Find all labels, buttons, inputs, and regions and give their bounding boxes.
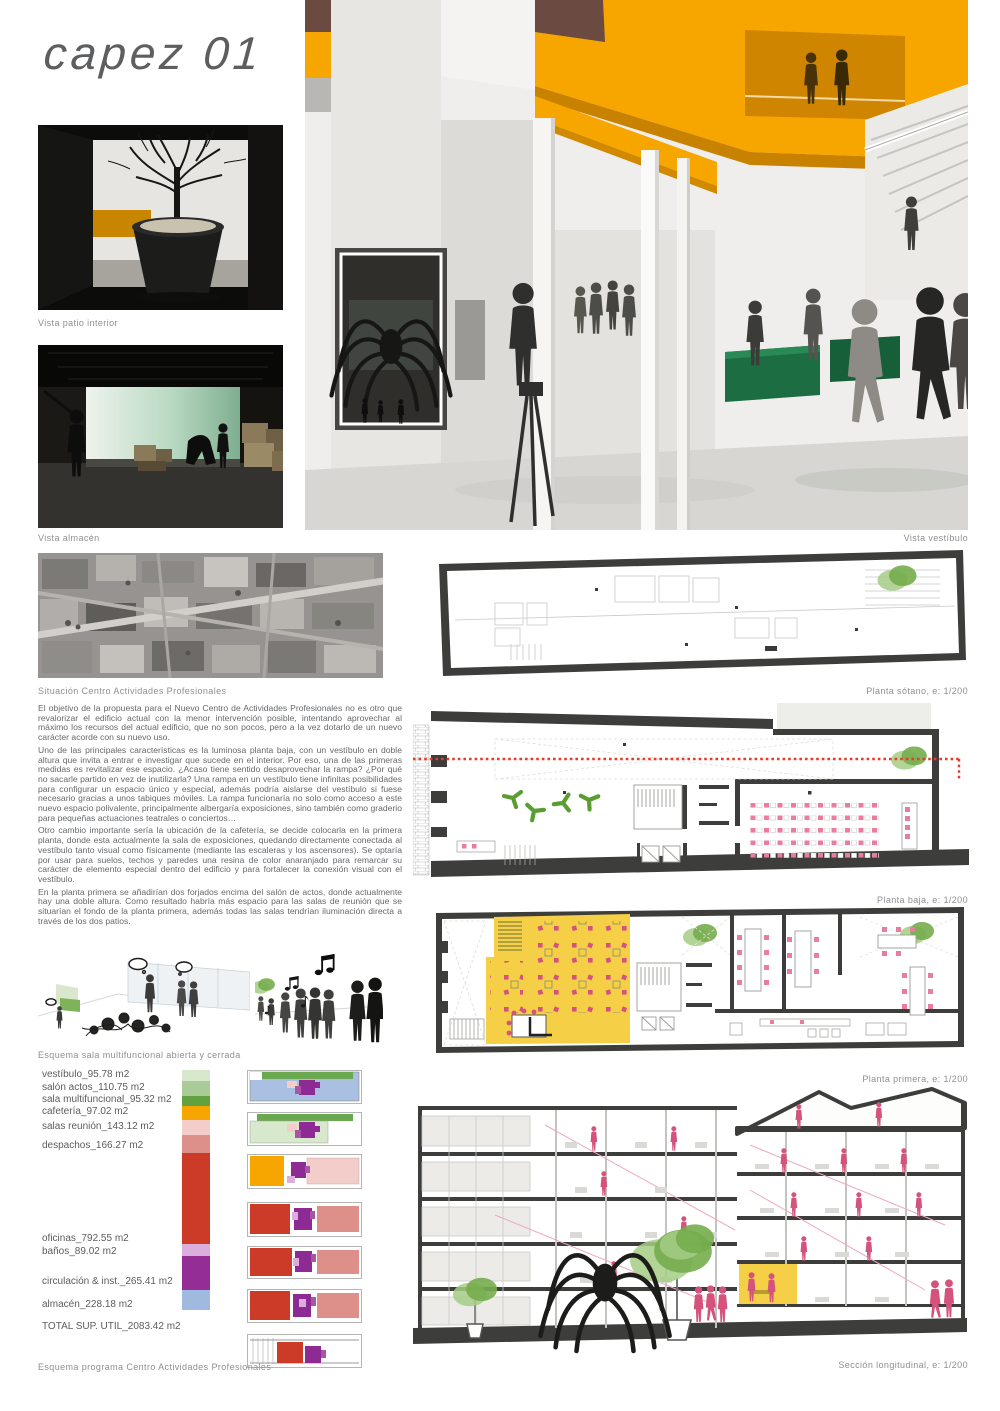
bar-vestibulo (182, 1070, 210, 1081)
plan-sotano (435, 548, 968, 678)
legend-item-oficinas: oficinas_792.55 m2 (42, 1233, 129, 1244)
program-thumb-5 (247, 1246, 362, 1279)
podium (902, 803, 917, 849)
bar-almacen (182, 1290, 210, 1310)
crowd-figures (258, 978, 383, 1043)
caption-situacion: Situación Centro Actividades Profesional… (38, 686, 226, 696)
bar-salas-reunion (182, 1120, 210, 1135)
paragraph-2: Uno de las principales características e… (38, 746, 402, 824)
bar-sala-multifuncional (182, 1096, 210, 1106)
green-seats (504, 792, 598, 823)
bar-cafeteria (182, 1106, 210, 1120)
bar-oficinas (182, 1153, 210, 1244)
legend-item-despachos: despachos_166.27 m2 (42, 1140, 143, 1151)
bar-banos (182, 1244, 210, 1256)
caption-patio: Vista patio interior (38, 318, 118, 328)
vestibule-render (305, 0, 968, 530)
legend-item-banos: baños_89.02 m2 (42, 1246, 117, 1257)
bar-circulacion (182, 1256, 210, 1290)
program-thumb-4 (247, 1202, 362, 1237)
sketch-sala-cerrada (255, 954, 383, 1046)
program-thumb-2 (247, 1112, 362, 1146)
stair-core (634, 785, 682, 862)
auditorium-seats (749, 797, 879, 859)
cafeteria-section (739, 1264, 797, 1304)
caption-esquema-sala: Esquema sala multifuncional abierta y ce… (38, 1050, 241, 1060)
bar-despachos (182, 1135, 210, 1153)
patio-photo (38, 125, 283, 310)
legend-item-cafeteria: cafetería_97.02 m2 (42, 1106, 128, 1117)
walls (431, 711, 969, 877)
courtyard-dashed (495, 739, 833, 779)
site-map (38, 553, 383, 678)
sketch-sala-abierta (38, 954, 250, 1046)
legend-item-salas-reunion: salas reunión_143.12 m2 (42, 1121, 154, 1132)
plan-baja (413, 703, 973, 888)
patio-wall-orange (305, 32, 331, 78)
plan-primera (430, 905, 970, 1055)
column-dots (563, 743, 812, 795)
program-thumb-3 (247, 1154, 362, 1189)
tree-big (630, 1224, 714, 1340)
program-color-bar (182, 1070, 210, 1310)
almacen-photo (38, 345, 283, 528)
caption-baja: Planta baja, e: 1/200 (877, 895, 968, 905)
project-description: El objetivo de la propuesta para el Nuev… (38, 704, 402, 929)
wall-stubs (438, 941, 448, 1013)
cafeteria-tables (525, 921, 628, 1013)
paragraph-3: Otro cambio importante sería la ubicació… (38, 826, 402, 884)
program-thumb-6 (247, 1289, 362, 1323)
roof (737, 1089, 965, 1134)
caption-almacen: Vista almacén (38, 533, 100, 543)
page-title: capez 01 (42, 26, 264, 80)
legend-item-almacen: almacén_228.18 m2 (42, 1299, 133, 1310)
caption-seccion: Sección longitudinal, e: 1/200 (838, 1360, 968, 1370)
brick-wall (413, 725, 429, 875)
green-shape (255, 978, 275, 993)
program-thumb-1 (247, 1070, 362, 1104)
caption-vestibulo: Vista vestíbulo (904, 533, 968, 543)
caption-esquema-programa: Esquema programa Centro Actividades Prof… (38, 1362, 271, 1372)
legend-item-sala-multifuncional: sala multifuncional_95.32 m2 (42, 1094, 172, 1105)
caption-sotano: Planta sótano, e: 1/200 (866, 686, 968, 696)
legend-item-circulacion: circulación & inst._265.41 m2 (42, 1276, 173, 1287)
legend-item-salon-actos: salón actos_110.75 m2 (42, 1082, 145, 1093)
bar-salon-actos (182, 1081, 210, 1096)
green-shape (60, 998, 80, 1012)
stairs (865, 84, 968, 300)
presentation-board: capez 01 (0, 0, 1000, 1411)
legend-item-vestibulo: vestíbulo_95.78 m2 (42, 1069, 129, 1080)
section-longitudinal (405, 1080, 975, 1358)
paragraph-4: En la planta primera se añadirían dos fo… (38, 888, 402, 927)
paragraph-1: El objetivo de la propuesta para el Nuev… (38, 704, 402, 743)
spider-scribble (82, 1013, 170, 1036)
spider-niche (332, 248, 451, 430)
legend-total: TOTAL SUP. UTIL_2083.42 m2 (42, 1321, 181, 1332)
patio-wall-brown (305, 0, 331, 32)
